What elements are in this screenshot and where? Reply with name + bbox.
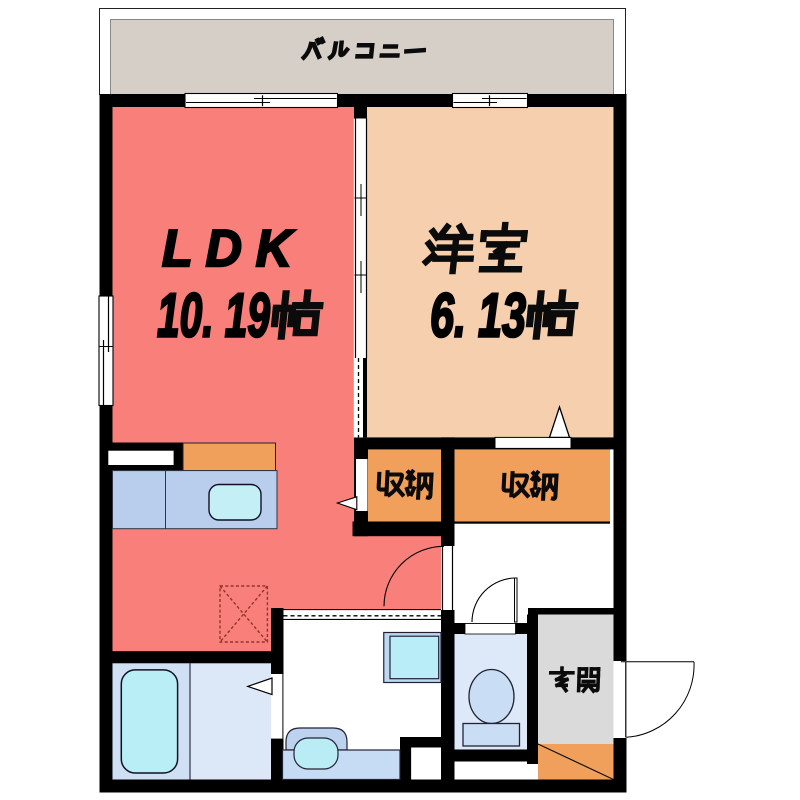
svg-text:6. 13: 6. 13: [430, 282, 526, 351]
svg-text:L D K: L D K: [162, 220, 295, 278]
svg-text:10. 19: 10. 19: [157, 282, 270, 351]
